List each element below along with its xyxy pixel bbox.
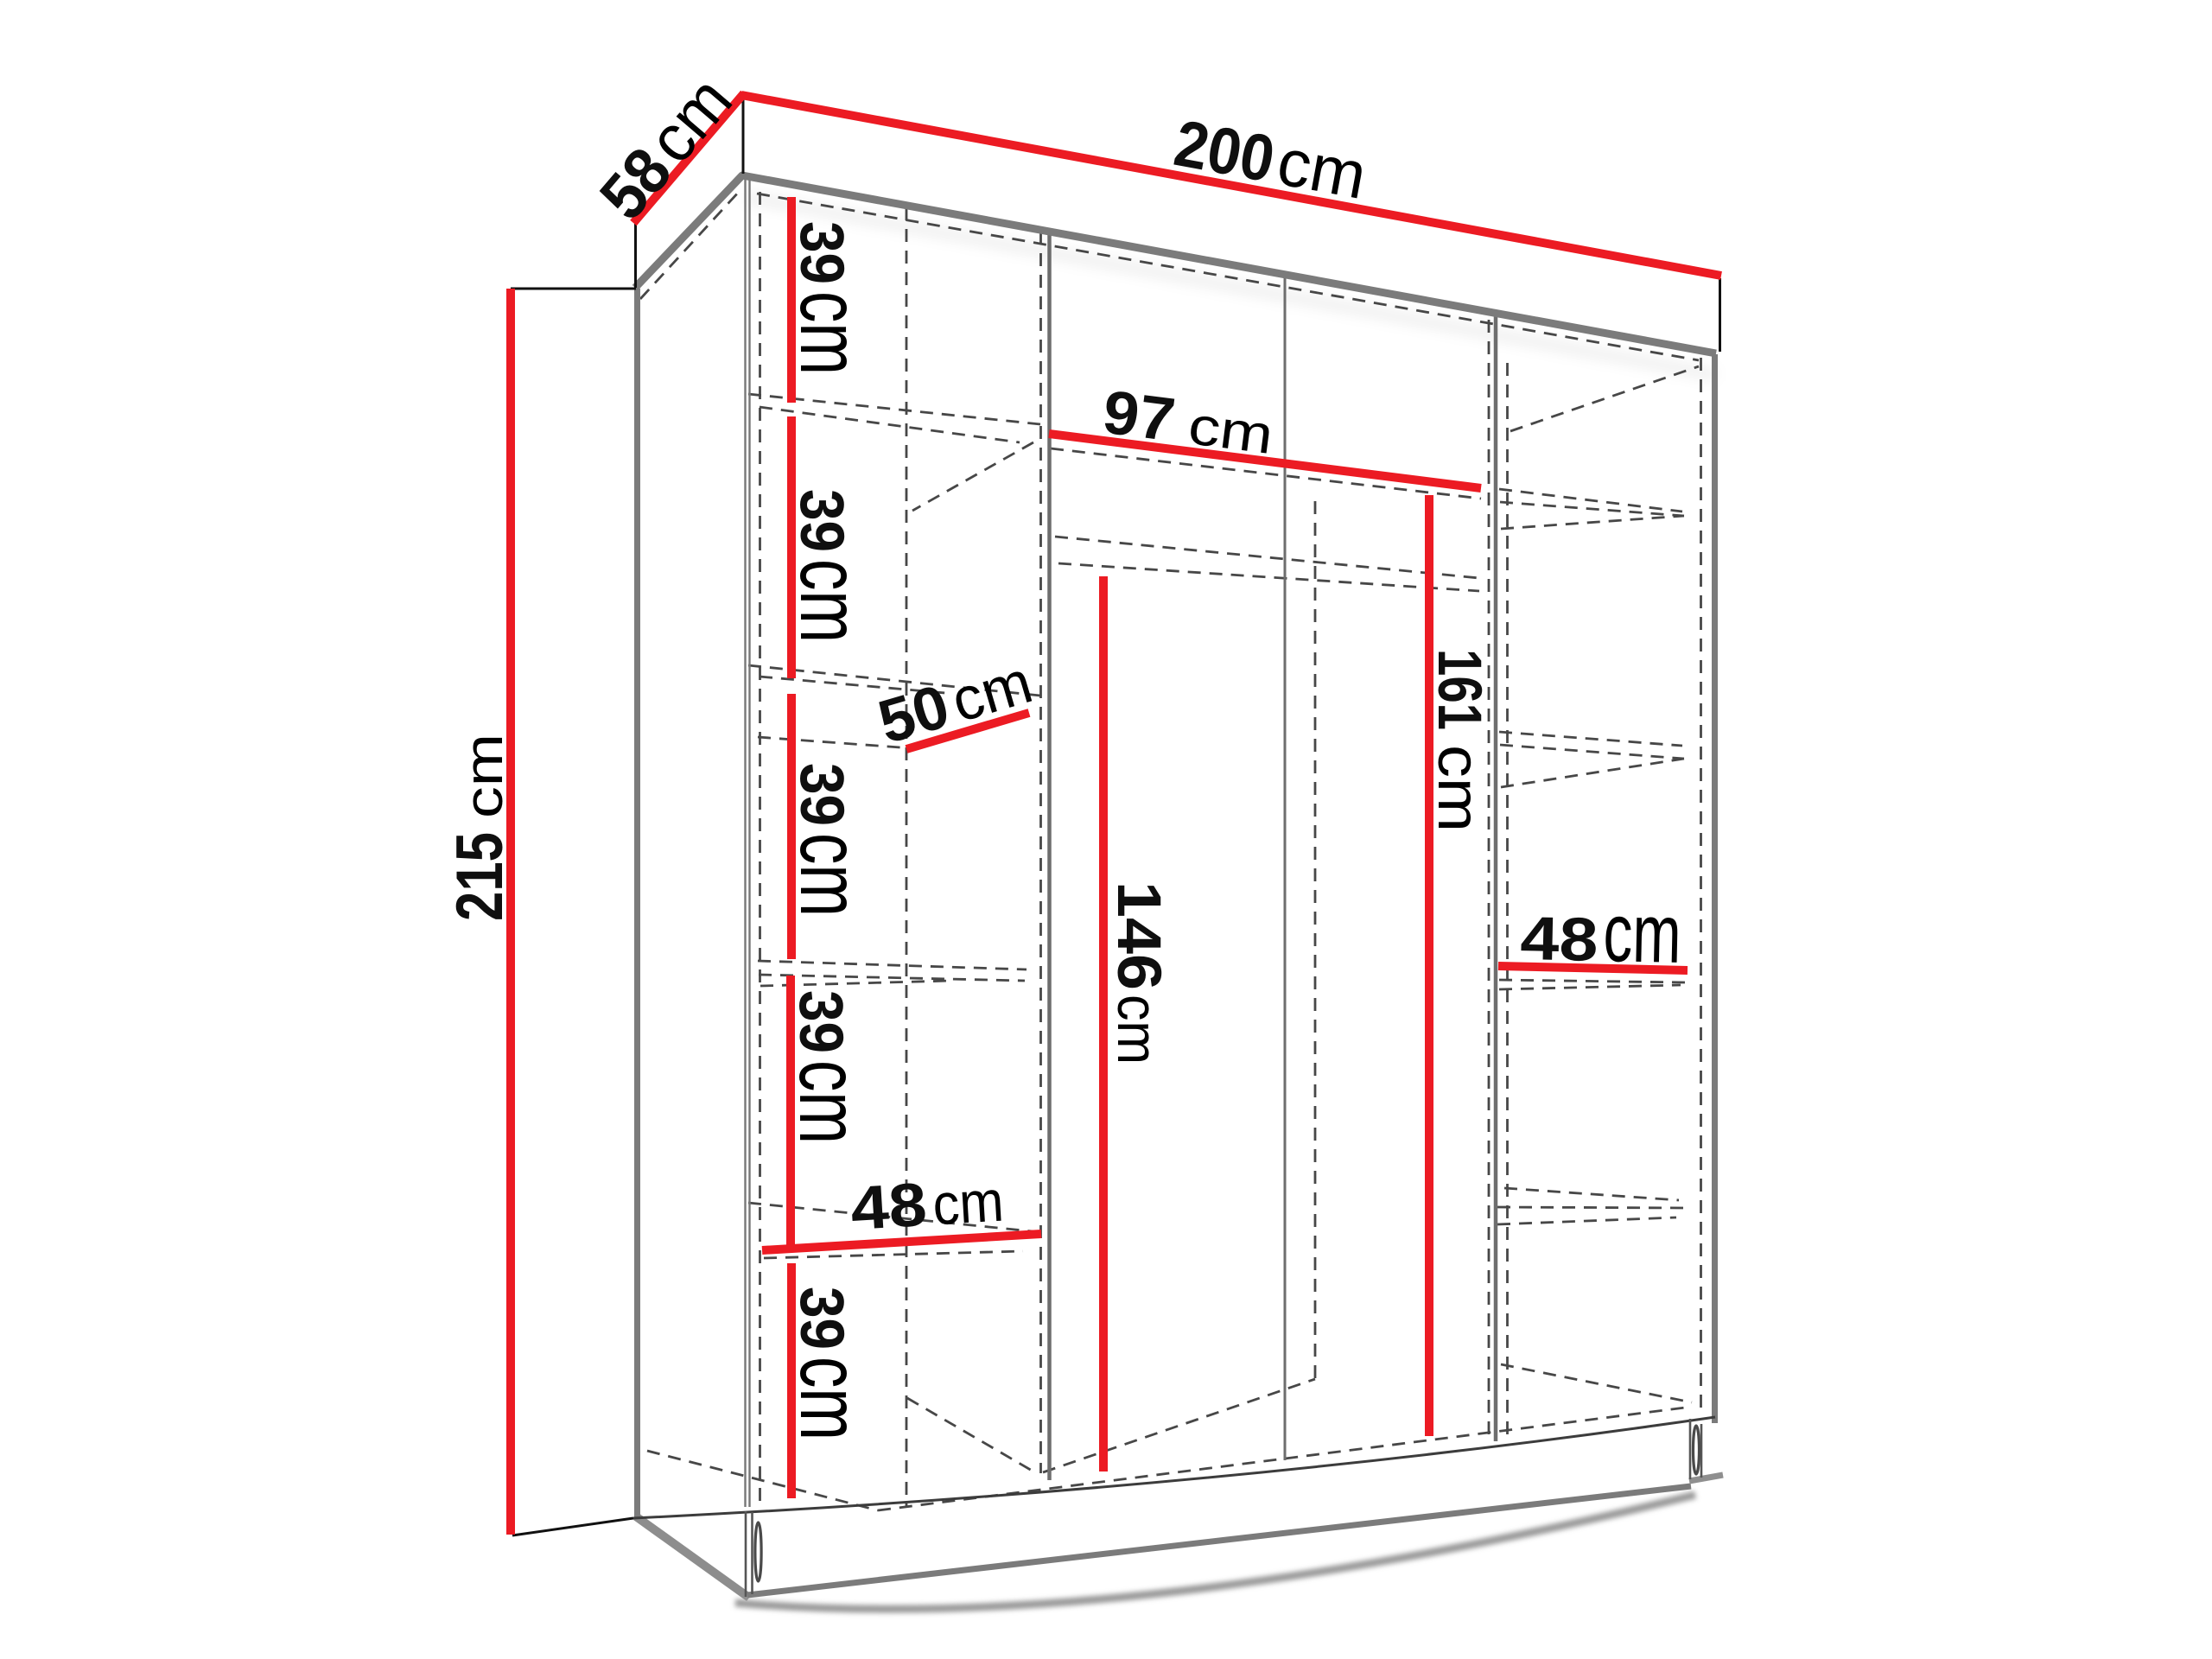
svg-text:215: 215 xyxy=(443,832,517,921)
svg-text:cm: cm xyxy=(1426,745,1492,832)
svg-text:cm: cm xyxy=(1603,887,1682,981)
svg-text:cm: cm xyxy=(783,833,878,917)
svg-text:161: 161 xyxy=(1425,649,1493,730)
svg-text:146: 146 xyxy=(1104,881,1173,990)
svg-text:39: 39 xyxy=(787,489,855,552)
svg-text:39: 39 xyxy=(787,221,855,284)
svg-text:97: 97 xyxy=(1099,378,1179,455)
svg-text:48: 48 xyxy=(849,1171,929,1243)
svg-text:cm: cm xyxy=(783,1357,878,1440)
svg-text:cm: cm xyxy=(782,1060,877,1144)
svg-text:39: 39 xyxy=(787,763,855,826)
svg-text:cm: cm xyxy=(1106,995,1170,1065)
svg-text:cm: cm xyxy=(1185,396,1276,466)
svg-text:cm: cm xyxy=(1272,124,1372,213)
svg-text:cm: cm xyxy=(783,559,878,643)
svg-text:cm: cm xyxy=(454,734,514,818)
svg-text:48: 48 xyxy=(1520,905,1599,975)
svg-text:39: 39 xyxy=(786,990,855,1053)
svg-text:cm: cm xyxy=(783,291,878,375)
svg-text:39: 39 xyxy=(787,1287,855,1350)
svg-text:cm: cm xyxy=(931,1169,1005,1238)
